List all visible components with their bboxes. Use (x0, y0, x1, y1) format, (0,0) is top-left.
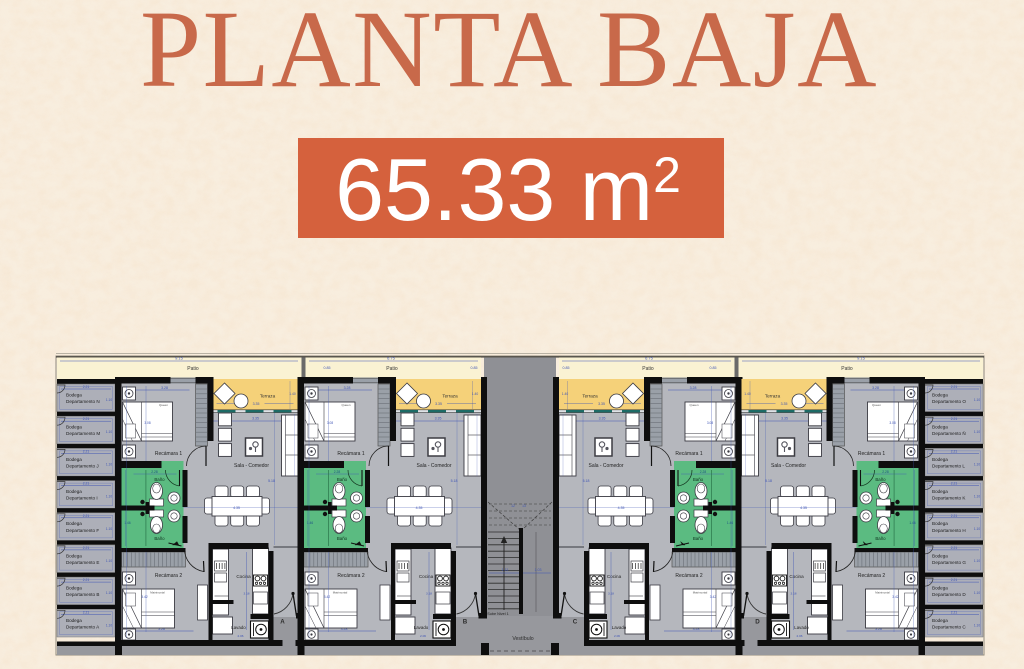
svg-text:Departamento D: Departamento D (932, 592, 966, 597)
svg-text:3.28: 3.28 (872, 386, 879, 390)
svg-text:Bodega: Bodega (66, 618, 82, 623)
svg-text:Sala - Comedor: Sala - Comedor (771, 463, 806, 469)
svg-text:5.18: 5.18 (765, 479, 772, 483)
svg-text:3.18: 3.18 (426, 592, 432, 596)
svg-text:Lavado: Lavado (414, 625, 429, 630)
svg-text:2.06: 2.06 (614, 634, 620, 638)
svg-text:1.10: 1.10 (106, 398, 112, 402)
svg-text:2.21: 2.21 (83, 385, 90, 389)
svg-text:2.21: 2.21 (951, 417, 958, 421)
svg-text:Departamento O: Departamento O (932, 399, 966, 404)
svg-text:Bodega: Bodega (66, 553, 82, 558)
svg-text:1.10: 1.10 (106, 559, 112, 563)
svg-text:2.21: 2.21 (951, 514, 958, 518)
svg-text:Terraza: Terraza (765, 394, 781, 399)
svg-text:3.35: 3.35 (781, 417, 788, 421)
svg-text:D: D (755, 619, 760, 626)
svg-text:4.35: 4.35 (618, 506, 625, 510)
svg-text:Sala - Comedor: Sala - Comedor (588, 463, 623, 469)
svg-text:3.35: 3.35 (253, 402, 260, 406)
svg-text:1.10: 1.10 (974, 462, 980, 466)
svg-text:Bodega: Bodega (66, 425, 82, 430)
svg-text:3.42: 3.42 (710, 595, 717, 599)
svg-text:9.15: 9.15 (857, 356, 866, 361)
svg-text:1.10: 1.10 (974, 623, 980, 627)
svg-text:0.85: 0.85 (710, 366, 717, 370)
svg-text:1.10: 1.10 (974, 398, 980, 402)
svg-text:4.35: 4.35 (233, 506, 240, 510)
svg-text:2.28: 2.28 (882, 470, 889, 474)
svg-text:1.10: 1.10 (106, 495, 112, 499)
svg-text:Queen: Queen (689, 403, 698, 407)
svg-text:Queen: Queen (159, 403, 168, 407)
svg-text:9.15: 9.15 (175, 356, 184, 361)
svg-text:3.35: 3.35 (598, 402, 605, 406)
svg-text:3.08: 3.08 (889, 421, 895, 425)
svg-text:Lavado: Lavado (794, 625, 809, 630)
svg-text:2.21: 2.21 (951, 578, 958, 582)
svg-text:Departamento B: Departamento B (66, 592, 99, 597)
svg-text:1.10: 1.10 (106, 462, 112, 466)
svg-text:Terraza: Terraza (260, 394, 276, 399)
svg-text:3.28: 3.28 (344, 386, 351, 390)
svg-text:Departamento L: Departamento L (932, 463, 965, 468)
svg-text:1.40: 1.40 (289, 392, 296, 396)
svg-text:3.18: 3.18 (243, 592, 249, 596)
svg-text:2.21: 2.21 (83, 578, 90, 582)
svg-text:Baño: Baño (693, 536, 704, 541)
svg-text:Bodega: Bodega (932, 489, 948, 494)
svg-text:PLANTA BAJA: PLANTA BAJA (140, 0, 878, 110)
svg-text:2.21: 2.21 (83, 449, 90, 453)
svg-text:3.18: 3.18 (608, 592, 614, 596)
svg-text:Bodega: Bodega (66, 586, 82, 591)
svg-text:3.35: 3.35 (435, 417, 442, 421)
svg-text:Bodega: Bodega (932, 457, 948, 462)
svg-text:3.35: 3.35 (781, 402, 788, 406)
svg-text:Queen: Queen (872, 403, 881, 407)
svg-text:1.10: 1.10 (106, 430, 112, 434)
svg-text:Baño: Baño (875, 536, 886, 541)
svg-text:4.35: 4.35 (416, 506, 423, 510)
svg-text:4.35: 4.35 (800, 506, 807, 510)
svg-text:Matrimonial: Matrimonial (333, 591, 348, 595)
svg-text:Recámara 2: Recámara 2 (155, 573, 182, 579)
svg-text:Bodega: Bodega (66, 489, 82, 494)
svg-text:1.11: 1.11 (502, 568, 509, 572)
svg-text:2.21: 2.21 (951, 546, 958, 550)
svg-text:Departamento Ñ: Departamento Ñ (932, 430, 966, 436)
svg-text:B: B (463, 619, 468, 626)
svg-text:Baño: Baño (875, 477, 886, 482)
svg-text:Recámara 1: Recámara 1 (675, 451, 702, 457)
svg-text:0.85: 0.85 (324, 366, 331, 370)
svg-text:A: A (280, 619, 285, 626)
svg-text:1.03: 1.03 (535, 568, 542, 572)
svg-text:Lavado: Lavado (612, 625, 627, 630)
svg-text:0.85: 0.85 (471, 366, 478, 370)
svg-text:2.21: 2.21 (83, 482, 90, 486)
svg-text:2.06: 2.06 (237, 634, 243, 638)
svg-text:Baño: Baño (154, 477, 165, 482)
svg-text:6.75: 6.75 (645, 356, 654, 361)
svg-text:2.21: 2.21 (83, 610, 90, 614)
svg-text:Sala - Comedor: Sala - Comedor (416, 463, 451, 469)
svg-text:1.46: 1.46 (909, 521, 915, 525)
svg-text:3.35: 3.35 (599, 417, 606, 421)
svg-text:C: C (573, 619, 578, 626)
svg-text:Baño: Baño (693, 477, 704, 482)
svg-text:Departamento G: Departamento G (932, 560, 966, 565)
svg-text:Lavado: Lavado (231, 625, 246, 630)
svg-text:1.10: 1.10 (974, 559, 980, 563)
svg-text:2.21: 2.21 (951, 610, 958, 614)
svg-text:Terraza: Terraza (442, 394, 458, 399)
svg-text:Bodega: Bodega (932, 618, 948, 623)
svg-text:Bodega: Bodega (932, 586, 948, 591)
svg-text:Departamento M: Departamento M (66, 431, 100, 436)
svg-text:Bodega: Bodega (66, 457, 82, 462)
svg-text:Recámara 1: Recámara 1 (337, 451, 364, 457)
svg-text:3.42: 3.42 (324, 595, 331, 599)
svg-text:Departamento N: Departamento N (66, 399, 100, 404)
svg-text:Bodega: Bodega (932, 393, 948, 398)
svg-text:3.08: 3.08 (707, 421, 713, 425)
svg-text:2.21: 2.21 (951, 385, 958, 389)
svg-text:Matrimonial: Matrimonial (150, 591, 165, 595)
svg-text:Vestíbulo: Vestíbulo (512, 636, 533, 642)
svg-text:2.21: 2.21 (951, 449, 958, 453)
svg-text:3.35: 3.35 (252, 417, 259, 421)
svg-text:Sala - Comedor: Sala - Comedor (234, 463, 269, 469)
svg-text:5.18: 5.18 (451, 479, 458, 483)
svg-text:6.75: 6.75 (387, 356, 396, 361)
svg-text:3.18: 3.18 (790, 592, 796, 596)
svg-text:Patio: Patio (841, 366, 853, 372)
svg-text:3.42: 3.42 (141, 595, 148, 599)
svg-text:1.10: 1.10 (106, 591, 112, 595)
svg-text:Recámara 1: Recámara 1 (155, 451, 182, 457)
svg-text:3.35: 3.35 (435, 402, 442, 406)
svg-text:Cocina: Cocina (236, 574, 251, 579)
svg-text:2.21: 2.21 (83, 546, 90, 550)
svg-text:3.08: 3.08 (144, 421, 150, 425)
svg-text:Matrimonial: Matrimonial (875, 591, 890, 595)
svg-text:2.28: 2.28 (334, 470, 341, 474)
svg-text:65.33 m2: 65.33 m2 (335, 140, 681, 239)
svg-text:2.06: 2.06 (420, 634, 426, 638)
svg-text:Queen: Queen (341, 403, 350, 407)
svg-text:2.28: 2.28 (700, 470, 707, 474)
svg-text:3.28: 3.28 (690, 386, 697, 390)
svg-text:Matrimonial: Matrimonial (693, 591, 708, 595)
svg-text:13: 13 (522, 504, 526, 508)
svg-text:Baño: Baño (337, 536, 348, 541)
svg-text:Bodega: Bodega (66, 521, 82, 526)
svg-text:Departamento C: Departamento C (932, 624, 966, 629)
svg-text:Departamento K: Departamento K (932, 496, 966, 501)
svg-text:Terraza: Terraza (582, 394, 598, 399)
svg-text:Departamento F: Departamento F (66, 528, 99, 533)
svg-text:Bodega: Bodega (932, 521, 948, 526)
svg-text:3.28: 3.28 (161, 386, 168, 390)
svg-text:5.18: 5.18 (268, 479, 275, 483)
svg-text:5.18: 5.18 (583, 479, 590, 483)
svg-text:Baño: Baño (337, 477, 348, 482)
svg-text:0.85: 0.85 (563, 366, 570, 370)
svg-text:1.10: 1.10 (106, 527, 112, 531)
svg-text:2.06: 2.06 (796, 634, 802, 638)
svg-text:2.21: 2.21 (83, 514, 90, 518)
svg-text:Sube Nivel 1: Sube Nivel 1 (487, 612, 509, 616)
svg-text:Recámara 2: Recámara 2 (337, 573, 364, 579)
svg-text:Departamento J: Departamento J (66, 463, 99, 468)
svg-text:Bodega: Bodega (932, 553, 948, 558)
svg-text:Cocina: Cocina (607, 574, 622, 579)
svg-text:Recámara 2: Recámara 2 (858, 573, 885, 579)
svg-text:1.40: 1.40 (472, 392, 479, 396)
svg-text:1.10: 1.10 (974, 591, 980, 595)
svg-text:1.46: 1.46 (727, 521, 733, 525)
svg-text:Patio: Patio (386, 366, 398, 372)
svg-text:12: 12 (511, 504, 515, 508)
svg-text:Departamento H: Departamento H (932, 528, 966, 533)
svg-text:3.08: 3.08 (327, 421, 333, 425)
svg-text:Patio: Patio (187, 366, 199, 372)
svg-text:1.10: 1.10 (974, 495, 980, 499)
svg-text:3.42: 3.42 (892, 595, 899, 599)
svg-text:Departamento A: Departamento A (66, 624, 100, 629)
svg-text:1.10: 1.10 (974, 527, 980, 531)
svg-text:Departamento I: Departamento I (66, 496, 98, 501)
svg-text:2.21: 2.21 (83, 417, 90, 421)
svg-text:Recámara 1: Recámara 1 (858, 451, 885, 457)
svg-text:Cocina: Cocina (789, 574, 804, 579)
svg-text:Bodega: Bodega (66, 393, 82, 398)
svg-text:Departamento E: Departamento E (66, 560, 99, 565)
svg-text:Bodega: Bodega (932, 425, 948, 430)
svg-text:2.21: 2.21 (951, 482, 958, 486)
svg-text:2.28: 2.28 (151, 470, 158, 474)
svg-text:Patio: Patio (642, 366, 654, 372)
svg-text:1.10: 1.10 (974, 430, 980, 434)
svg-text:Recámara 2: Recámara 2 (675, 573, 702, 579)
svg-text:Baño: Baño (154, 536, 165, 541)
svg-text:Cocina: Cocina (419, 574, 434, 579)
svg-text:1.10: 1.10 (106, 623, 112, 627)
